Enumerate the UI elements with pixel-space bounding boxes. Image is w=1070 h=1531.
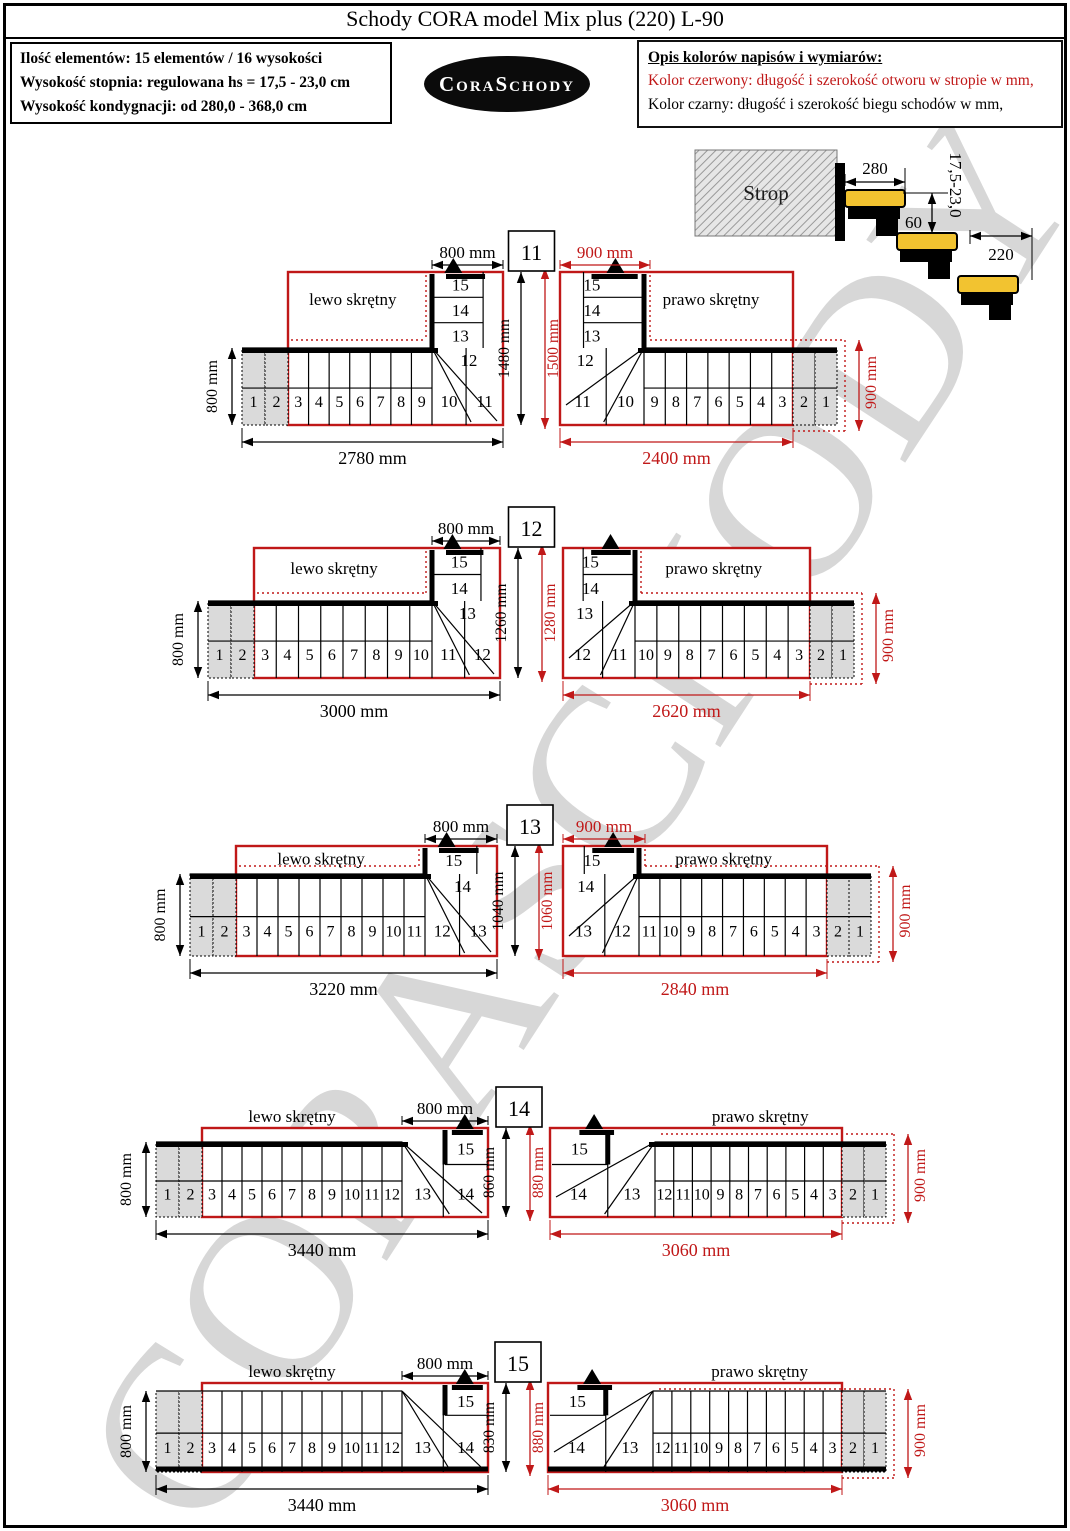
svg-text:7: 7 <box>350 647 358 664</box>
svg-text:3: 3 <box>243 924 251 941</box>
svg-text:3: 3 <box>795 647 803 664</box>
svg-text:6: 6 <box>268 1440 276 1457</box>
left-diagram-15: 123456789101112131415lewo skrętny800 mm8… <box>118 1354 488 1515</box>
svg-text:3: 3 <box>829 1440 837 1457</box>
svg-text:7: 7 <box>729 924 737 941</box>
right-diagram-15: 211211109876543141315prawo skrętny900 mm… <box>548 1362 929 1515</box>
svg-text:14: 14 <box>508 1096 530 1121</box>
svg-text:800 mm: 800 mm <box>438 519 494 538</box>
svg-text:9: 9 <box>664 647 672 664</box>
svg-text:5: 5 <box>771 924 779 941</box>
variant-group-15: 123456789101112131415lewo skrętny800 mm8… <box>118 1342 929 1515</box>
svg-text:5: 5 <box>791 1440 799 1457</box>
svg-text:15: 15 <box>507 1351 529 1376</box>
svg-text:280: 280 <box>862 159 888 178</box>
svg-text:9: 9 <box>328 1187 336 1204</box>
svg-text:10: 10 <box>386 924 402 941</box>
svg-text:10: 10 <box>694 1187 710 1204</box>
svg-text:4: 4 <box>315 394 323 411</box>
svg-text:2: 2 <box>187 1187 195 1204</box>
svg-text:1: 1 <box>856 924 864 941</box>
page-title: Schody CORA model Mix plus (220) L-90 <box>0 6 1070 32</box>
svg-text:830 mm: 830 mm <box>481 1402 498 1453</box>
svg-text:6: 6 <box>750 924 758 941</box>
svg-text:6: 6 <box>328 647 336 664</box>
svg-text:10: 10 <box>638 647 654 664</box>
svg-text:3: 3 <box>813 924 821 941</box>
svg-text:9: 9 <box>715 1440 723 1457</box>
svg-text:800 mm: 800 mm <box>118 1153 135 1206</box>
svg-text:8: 8 <box>708 924 716 941</box>
svg-text:4: 4 <box>283 647 291 664</box>
svg-text:13: 13 <box>459 604 476 623</box>
cora-schody-logo: CoraSchody <box>424 56 590 112</box>
svg-text:2: 2 <box>834 924 842 941</box>
svg-text:6: 6 <box>729 647 737 664</box>
svg-text:11: 11 <box>476 392 492 411</box>
svg-text:860 mm: 860 mm <box>481 1147 498 1198</box>
svg-text:6: 6 <box>356 394 364 411</box>
svg-text:5: 5 <box>248 1440 256 1457</box>
svg-text:4: 4 <box>757 394 765 411</box>
svg-text:13: 13 <box>519 814 541 839</box>
svg-text:2: 2 <box>221 924 229 941</box>
svg-text:1060 mm: 1060 mm <box>539 872 556 931</box>
svg-text:17,5-23,0: 17,5-23,0 <box>946 152 965 217</box>
svg-text:10: 10 <box>441 392 458 411</box>
staircase-drawings: 123456789101115141312lewo skrętny800 mm8… <box>0 0 1070 1531</box>
svg-text:14: 14 <box>452 301 470 320</box>
svg-text:6: 6 <box>715 394 723 411</box>
svg-text:14: 14 <box>454 877 472 896</box>
svg-text:4: 4 <box>264 924 272 941</box>
svg-text:2: 2 <box>187 1440 195 1457</box>
svg-text:5: 5 <box>751 647 759 664</box>
svg-text:8: 8 <box>735 1187 743 1204</box>
svg-text:14: 14 <box>457 1438 475 1457</box>
svg-text:lewo skrętny: lewo skrętny <box>290 559 378 578</box>
svg-text:3060 mm: 3060 mm <box>661 1495 730 1515</box>
svg-text:12: 12 <box>384 1187 400 1204</box>
svg-text:2: 2 <box>849 1187 857 1204</box>
svg-text:8: 8 <box>348 924 356 941</box>
svg-text:13: 13 <box>623 1185 640 1204</box>
svg-text:12: 12 <box>654 1440 670 1457</box>
svg-text:800 mm: 800 mm <box>417 1354 473 1373</box>
right-diagram-11: 219876543111015141312prawo skrętny900 mm… <box>560 243 880 468</box>
svg-text:2: 2 <box>817 647 825 664</box>
svg-text:15: 15 <box>451 552 468 571</box>
svg-text:10: 10 <box>344 1440 360 1457</box>
svg-text:1: 1 <box>871 1187 879 1204</box>
svg-text:6: 6 <box>306 924 314 941</box>
svg-text:3: 3 <box>208 1440 216 1457</box>
svg-text:8: 8 <box>397 394 405 411</box>
svg-text:14: 14 <box>583 301 601 320</box>
svg-text:13: 13 <box>621 1438 638 1457</box>
svg-text:1: 1 <box>871 1440 879 1457</box>
left-diagram-13: 123456789101112131514lewo skrętny800 mm8… <box>152 817 497 999</box>
svg-text:9: 9 <box>716 1187 724 1204</box>
svg-text:10: 10 <box>692 1440 708 1457</box>
svg-text:14: 14 <box>577 877 595 896</box>
svg-text:prawo skrętny: prawo skrętny <box>711 1362 808 1381</box>
svg-text:800 mm: 800 mm <box>439 243 495 262</box>
svg-text:2: 2 <box>239 647 247 664</box>
svg-text:9: 9 <box>418 394 426 411</box>
svg-text:12: 12 <box>574 645 591 664</box>
svg-text:10: 10 <box>413 647 429 664</box>
svg-text:800 mm: 800 mm <box>118 1405 135 1458</box>
svg-text:prawo skrętny: prawo skrętny <box>712 1107 809 1126</box>
svg-text:8: 8 <box>308 1187 316 1204</box>
svg-text:7: 7 <box>288 1440 296 1457</box>
right-diagram-13: 211110987654313121514prawo skrętny900 mm… <box>563 817 914 999</box>
svg-text:Strop: Strop <box>743 181 789 205</box>
svg-text:15: 15 <box>582 552 599 571</box>
svg-text:4: 4 <box>773 647 781 664</box>
svg-text:8: 8 <box>372 647 380 664</box>
svg-text:1: 1 <box>250 394 258 411</box>
svg-text:3060 mm: 3060 mm <box>662 1240 731 1260</box>
svg-text:14: 14 <box>582 579 600 598</box>
svg-text:9: 9 <box>328 1440 336 1457</box>
svg-text:4: 4 <box>228 1187 236 1204</box>
svg-text:13: 13 <box>414 1185 431 1204</box>
svg-text:lewo skrętny: lewo skrętny <box>248 1362 336 1381</box>
svg-text:9: 9 <box>687 924 695 941</box>
svg-text:4: 4 <box>792 924 800 941</box>
svg-text:800 mm: 800 mm <box>204 360 221 413</box>
svg-text:800 mm: 800 mm <box>152 888 169 941</box>
svg-text:8: 8 <box>686 647 694 664</box>
svg-text:3: 3 <box>778 394 786 411</box>
svg-text:prawo skrętny: prawo skrętny <box>665 559 762 578</box>
svg-text:1: 1 <box>216 647 224 664</box>
svg-text:220: 220 <box>988 245 1014 264</box>
svg-text:3: 3 <box>829 1187 837 1204</box>
svg-text:12: 12 <box>656 1187 672 1204</box>
svg-text:12: 12 <box>577 351 594 370</box>
svg-text:7: 7 <box>754 1187 762 1204</box>
svg-text:11: 11 <box>440 645 456 664</box>
specs-box: Ilość elementów: 15 elementów / 16 wysok… <box>10 42 392 124</box>
variant-group-13: 123456789101112131514lewo skrętny800 mm8… <box>152 805 914 999</box>
svg-text:6: 6 <box>772 1440 780 1457</box>
svg-text:3220 mm: 3220 mm <box>309 979 378 999</box>
variant-group-14: 123456789101112131415lewo skrętny800 mm8… <box>118 1087 929 1260</box>
svg-text:2840 mm: 2840 mm <box>661 979 730 999</box>
svg-text:3440 mm: 3440 mm <box>288 1240 357 1260</box>
svg-text:11: 11 <box>574 392 590 411</box>
svg-text:3: 3 <box>294 394 302 411</box>
svg-text:7: 7 <box>753 1440 761 1457</box>
svg-text:8: 8 <box>734 1440 742 1457</box>
svg-text:800 mm: 800 mm <box>417 1099 473 1118</box>
svg-text:2: 2 <box>849 1440 857 1457</box>
svg-text:2620 mm: 2620 mm <box>652 701 721 721</box>
svg-text:11: 11 <box>521 240 542 265</box>
spec-line-step-height: Wysokość stopnia: regulowana hs = 17,5 -… <box>20 71 382 95</box>
svg-text:15: 15 <box>571 1139 588 1158</box>
svg-text:5: 5 <box>335 394 343 411</box>
left-diagram-12: 123456789101112151413lewo skrętny800 mm8… <box>170 519 500 721</box>
svg-text:9: 9 <box>369 924 377 941</box>
left-diagram-14: 123456789101112131415lewo skrętny800 mm8… <box>118 1099 488 1260</box>
svg-text:2: 2 <box>800 394 808 411</box>
svg-text:800 mm: 800 mm <box>170 613 187 666</box>
svg-text:9: 9 <box>651 394 659 411</box>
svg-text:prawo skrętny: prawo skrętny <box>663 290 760 309</box>
svg-text:900 mm: 900 mm <box>912 1149 929 1202</box>
svg-text:3: 3 <box>261 647 269 664</box>
svg-text:1: 1 <box>198 924 206 941</box>
svg-text:12: 12 <box>460 351 477 370</box>
svg-text:1280 mm: 1280 mm <box>542 584 559 643</box>
svg-text:3: 3 <box>208 1187 216 1204</box>
svg-text:60: 60 <box>905 213 922 232</box>
svg-text:prawo skrętny: prawo skrętny <box>675 849 772 868</box>
svg-text:15: 15 <box>569 1392 586 1411</box>
left-diagram-11: 123456789101115141312lewo skrętny800 mm8… <box>204 243 503 468</box>
svg-text:7: 7 <box>693 394 701 411</box>
title-separator <box>3 37 1067 39</box>
svg-text:12: 12 <box>521 516 543 541</box>
svg-text:5: 5 <box>736 394 744 411</box>
svg-text:13: 13 <box>576 604 593 623</box>
svg-text:8: 8 <box>672 394 680 411</box>
legend-red-line: Kolor czerwony: długość i szerokość otwo… <box>648 69 1052 92</box>
svg-text:900 mm: 900 mm <box>897 884 914 937</box>
svg-text:13: 13 <box>452 326 469 345</box>
svg-text:11: 11 <box>364 1187 379 1204</box>
svg-text:10: 10 <box>662 924 678 941</box>
drawing-sheet: Schody CORA model Mix plus (220) L-90 Il… <box>0 0 1070 1531</box>
svg-text:7: 7 <box>708 647 716 664</box>
legend-heading: Opis kolorów napisów i wymiarów: <box>648 46 1052 69</box>
svg-text:900 mm: 900 mm <box>577 243 633 262</box>
svg-text:900 mm: 900 mm <box>576 817 632 836</box>
right-diagram-12: 211098765431211151413prawo skrętny900 mm… <box>563 534 897 721</box>
spec-line-elements: Ilość elementów: 15 elementów / 16 wysok… <box>20 47 382 71</box>
svg-text:8: 8 <box>308 1440 316 1457</box>
svg-text:11: 11 <box>674 1440 689 1457</box>
svg-text:6: 6 <box>268 1187 276 1204</box>
svg-text:9: 9 <box>395 647 403 664</box>
svg-text:12: 12 <box>434 922 451 941</box>
svg-text:13: 13 <box>583 326 600 345</box>
svg-text:15: 15 <box>445 851 462 870</box>
svg-text:10: 10 <box>344 1187 360 1204</box>
svg-text:1: 1 <box>822 394 830 411</box>
svg-text:880 mm: 880 mm <box>530 1147 547 1198</box>
svg-text:lewo skrętny: lewo skrętny <box>248 1107 336 1126</box>
svg-text:3440 mm: 3440 mm <box>288 1495 357 1515</box>
svg-text:1: 1 <box>164 1440 172 1457</box>
variant-group-11: 123456789101115141312lewo skrętny800 mm8… <box>204 231 880 468</box>
svg-text:1: 1 <box>839 647 847 664</box>
logo-text: CoraSchody <box>439 72 575 97</box>
svg-text:14: 14 <box>451 579 469 598</box>
svg-text:4: 4 <box>810 1440 818 1457</box>
svg-text:800 mm: 800 mm <box>433 817 489 836</box>
variant-group-12: 123456789101112151413lewo skrętny800 mm8… <box>170 507 897 721</box>
spec-line-storey-height: Wysokość kondygnacji: od 280,0 - 368,0 c… <box>20 95 382 119</box>
legend-black-line: Kolor czarny: długość i szerokość biegu … <box>648 93 1052 116</box>
svg-text:1: 1 <box>164 1187 172 1204</box>
svg-text:1260 mm: 1260 mm <box>493 584 510 643</box>
svg-text:13: 13 <box>575 922 592 941</box>
svg-text:11: 11 <box>364 1440 379 1457</box>
svg-text:1040 mm: 1040 mm <box>490 872 507 931</box>
svg-text:1480 mm: 1480 mm <box>496 319 513 378</box>
svg-text:5: 5 <box>306 647 314 664</box>
svg-text:5: 5 <box>248 1187 256 1204</box>
svg-text:5: 5 <box>285 924 293 941</box>
svg-text:11: 11 <box>642 924 657 941</box>
svg-text:880 mm: 880 mm <box>530 1402 547 1453</box>
color-legend-box: Opis kolorów napisów i wymiarów: Kolor c… <box>637 40 1063 128</box>
right-diagram-14: 211211109876543141315prawo skrętny900 mm… <box>550 1107 929 1260</box>
svg-text:11: 11 <box>407 924 422 941</box>
svg-text:7: 7 <box>288 1187 296 1204</box>
svg-text:lewo skrętny: lewo skrętny <box>309 290 397 309</box>
svg-text:12: 12 <box>384 1440 400 1457</box>
svg-text:15: 15 <box>583 851 600 870</box>
svg-text:2780 mm: 2780 mm <box>338 448 407 468</box>
svg-text:7: 7 <box>327 924 335 941</box>
svg-text:900 mm: 900 mm <box>912 1404 929 1457</box>
svg-text:4: 4 <box>228 1440 236 1457</box>
svg-text:15: 15 <box>457 1392 474 1411</box>
svg-text:lewo skrętny: lewo skrętny <box>277 849 365 868</box>
svg-text:6: 6 <box>773 1187 781 1204</box>
svg-text:14: 14 <box>568 1438 586 1457</box>
svg-text:13: 13 <box>414 1438 431 1457</box>
svg-text:900 mm: 900 mm <box>880 609 897 662</box>
svg-text:900 mm: 900 mm <box>863 356 880 409</box>
svg-text:10: 10 <box>617 392 634 411</box>
svg-text:5: 5 <box>791 1187 799 1204</box>
svg-text:2400 mm: 2400 mm <box>642 448 711 468</box>
svg-text:12: 12 <box>614 922 631 941</box>
svg-text:3000 mm: 3000 mm <box>320 701 389 721</box>
svg-text:11: 11 <box>675 1187 690 1204</box>
svg-text:15: 15 <box>457 1139 474 1158</box>
svg-text:7: 7 <box>377 394 385 411</box>
svg-text:2: 2 <box>273 394 281 411</box>
svg-text:4: 4 <box>810 1187 818 1204</box>
